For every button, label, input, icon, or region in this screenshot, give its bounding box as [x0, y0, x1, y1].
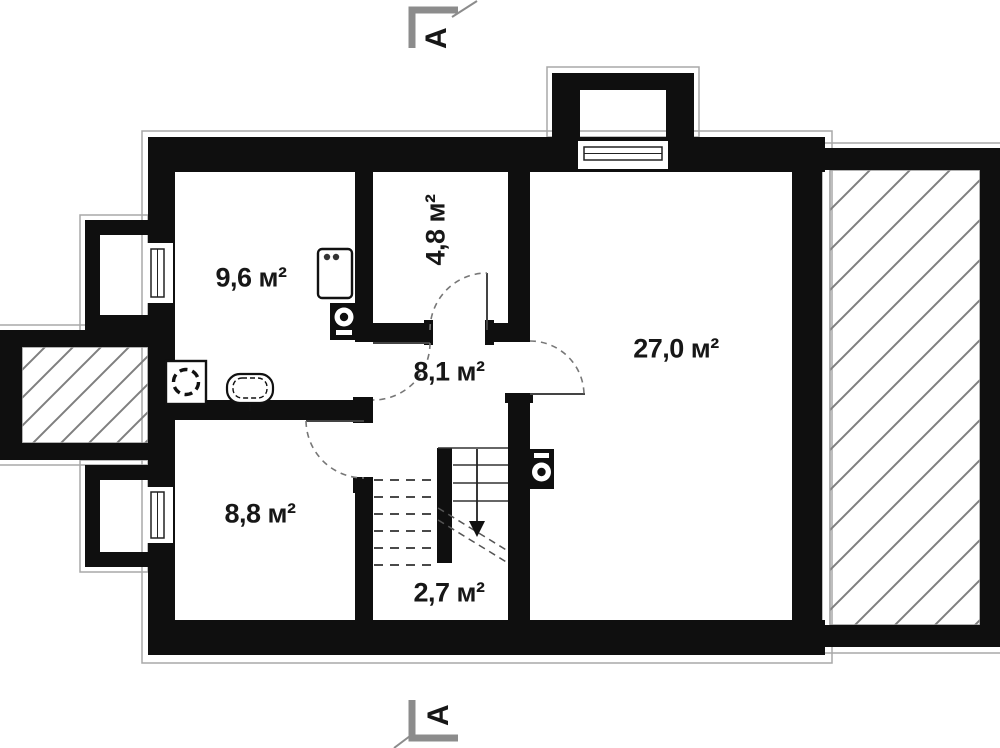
door-to-8-8: [306, 421, 364, 478]
section-marker-bottom: A: [394, 700, 458, 748]
left-bay-upper: [85, 220, 148, 330]
boiler-icon: [330, 303, 358, 340]
stair-direction-arrow: [469, 449, 485, 537]
floor-plan-page: A A 9,6 м² 4,8 м² 8,1 м² 27,0 м² 8,8 м² …: [0, 0, 1000, 748]
washing-machine-icon: [166, 361, 206, 404]
porch-hatch: [22, 347, 148, 443]
window-top: [578, 141, 668, 169]
window-left-upper: [146, 243, 173, 303]
room-label-27-0: 27,0 м²: [633, 336, 719, 363]
window-left-lower: [146, 487, 173, 543]
left-bay-lower: [85, 465, 148, 567]
room-label-4-8: 4,8 м²: [423, 195, 450, 266]
floor-plan-drawing: A A: [0, 0, 1000, 748]
room-label-9-6: 9,6 м²: [216, 265, 287, 292]
section-letter-top: A: [420, 27, 453, 49]
door-to-4-8: [430, 273, 487, 330]
stove-icon: [318, 249, 352, 298]
water-heater-icon: [529, 449, 554, 489]
section-letter-bottom: A: [422, 704, 455, 726]
section-marker-top: A: [412, 1, 477, 49]
door-to-27-0: [530, 341, 585, 395]
terrace-hatch: [830, 170, 980, 625]
room-label-2-7: 2,7 м²: [414, 580, 485, 607]
room-label-8-1: 8,1 м²: [414, 359, 485, 386]
room-label-8-8: 8,8 м²: [225, 501, 296, 528]
chimney-walls: [552, 73, 694, 137]
